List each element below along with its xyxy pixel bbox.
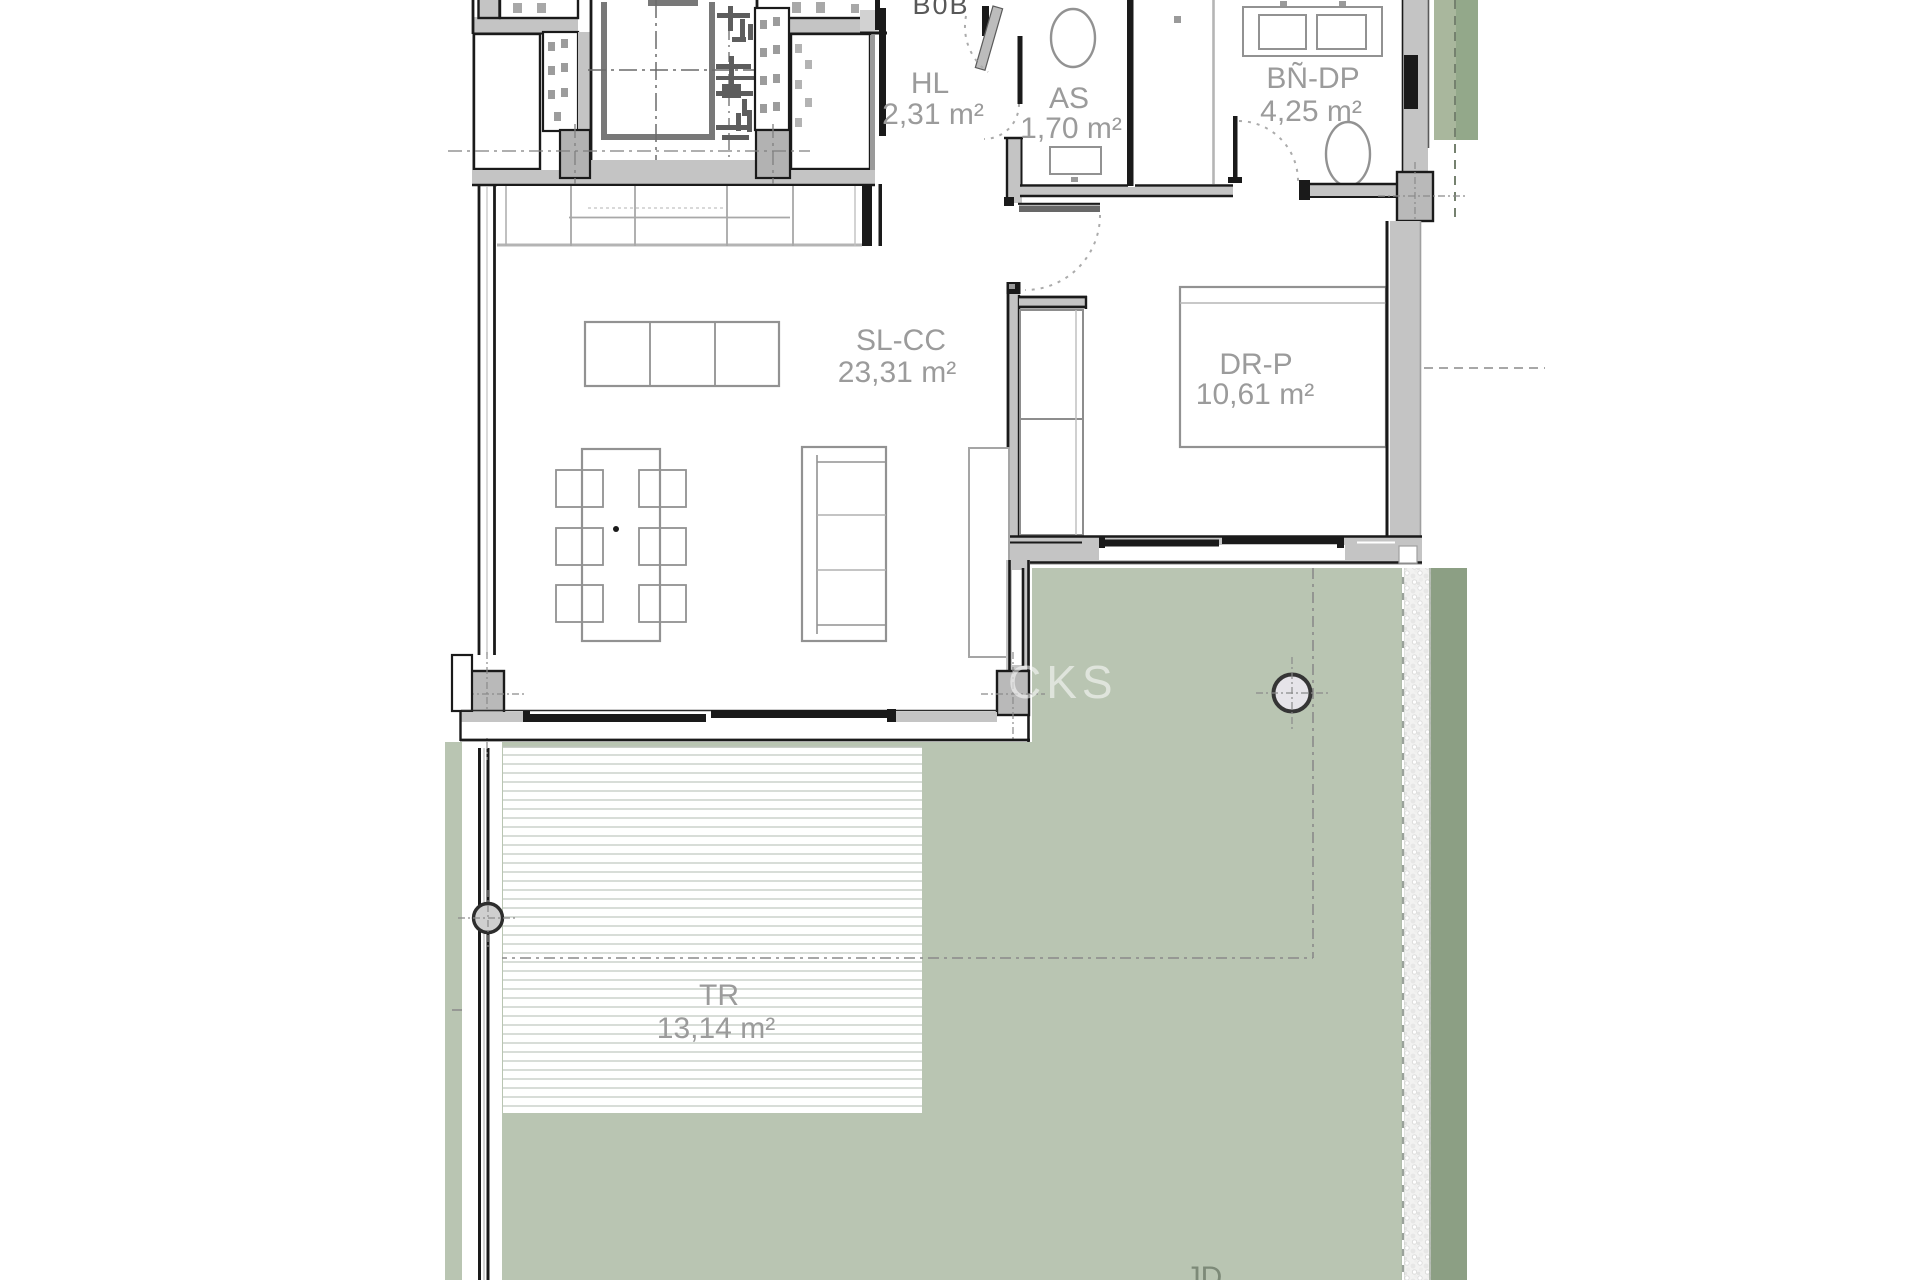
svg-text:23,31 m²: 23,31 m² [838,356,956,389]
svg-text:SL-CC: SL-CC [856,324,946,357]
svg-text:BÑ-DP: BÑ-DP [1266,61,1359,95]
svg-text:2,31 m²: 2,31 m² [882,98,984,131]
svg-text:AS: AS [1049,82,1089,115]
svg-text:JD: JD [1186,1261,1223,1280]
svg-text:CKS: CKS [1008,656,1118,708]
svg-text:1,70 m²: 1,70 m² [1020,112,1122,145]
svg-text:DR-P: DR-P [1219,348,1292,381]
svg-text:10,61 m²: 10,61 m² [1196,378,1314,411]
svg-text:B0B: B0B [912,0,969,20]
svg-text:13,14 m²: 13,14 m² [657,1012,775,1045]
svg-text:HL: HL [911,67,949,100]
svg-text:TR: TR [699,979,739,1012]
